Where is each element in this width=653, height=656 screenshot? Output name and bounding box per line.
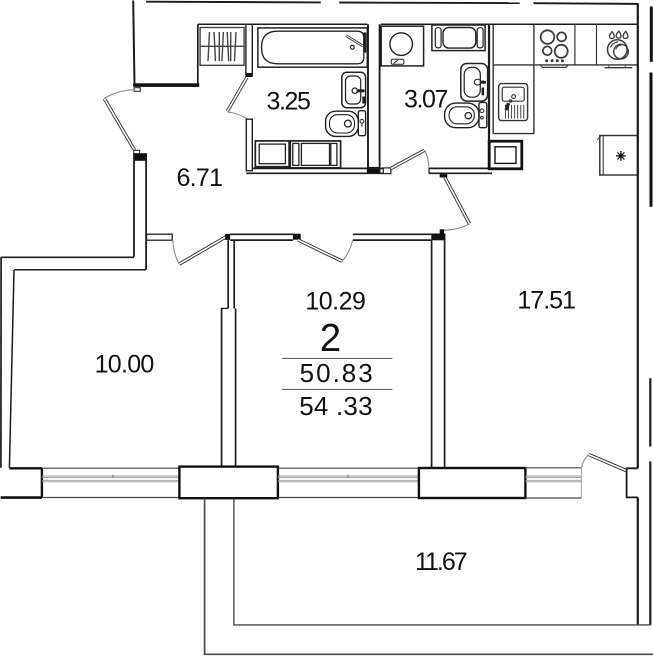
svg-text:54 .33: 54 .33 bbox=[299, 391, 373, 421]
svg-text:10.00: 10.00 bbox=[95, 351, 154, 379]
svg-text:50.83: 50.83 bbox=[300, 358, 375, 388]
svg-text:3.07: 3.07 bbox=[404, 86, 448, 114]
svg-text:11.67: 11.67 bbox=[415, 548, 467, 576]
svg-text:17.51: 17.51 bbox=[517, 287, 575, 315]
svg-text:2: 2 bbox=[320, 317, 341, 360]
svg-text:3.25: 3.25 bbox=[266, 88, 310, 116]
svg-text:10.29: 10.29 bbox=[305, 288, 365, 316]
svg-text:6.71: 6.71 bbox=[176, 164, 222, 192]
